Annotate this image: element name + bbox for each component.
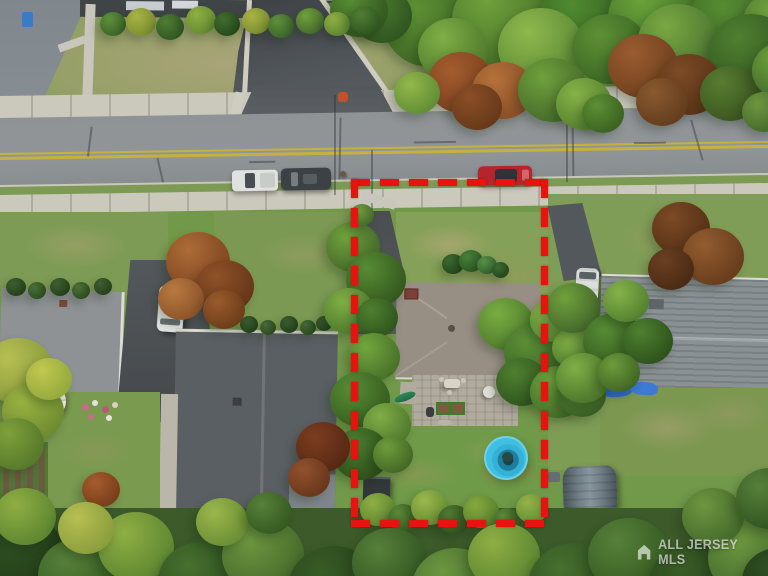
boundary-bottom-edge [351,520,548,527]
boundary-left-edge [351,179,358,527]
house-logo-icon [635,542,654,562]
boundary-top-edge [351,179,548,186]
boundary-right-edge [541,179,548,527]
property-boundary-overlay [0,0,768,576]
mls-watermark-text: ALL JERSEY MLS [658,537,763,567]
aerial-photo: ALL JERSEY MLS [0,0,768,576]
mls-watermark: ALL JERSEY MLS [635,537,763,567]
